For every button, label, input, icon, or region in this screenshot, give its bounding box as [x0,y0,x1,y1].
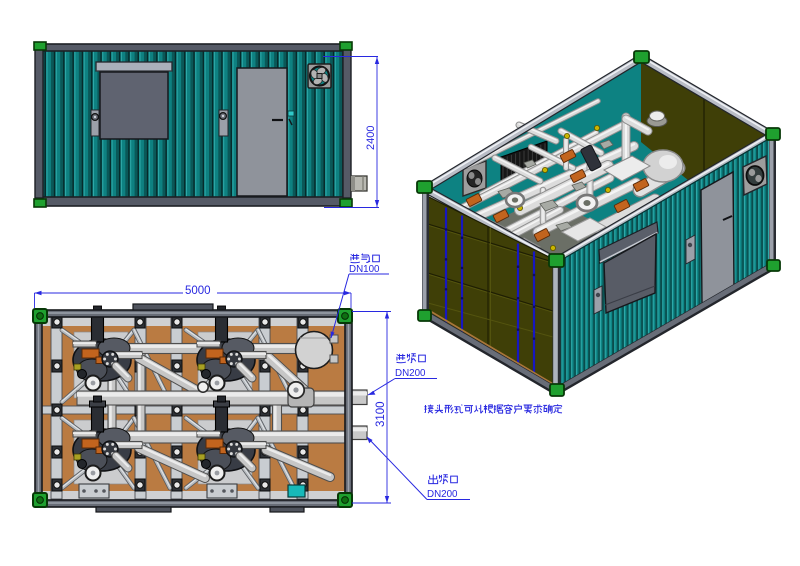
svg-text:3100: 3100 [375,401,387,427]
svg-text:2400: 2400 [365,126,377,150]
svg-text:DN100: DN100 [349,264,380,275]
svg-text:DN200: DN200 [427,489,458,500]
svg-text:5000: 5000 [185,285,211,297]
svg-text:DN200: DN200 [395,368,426,379]
